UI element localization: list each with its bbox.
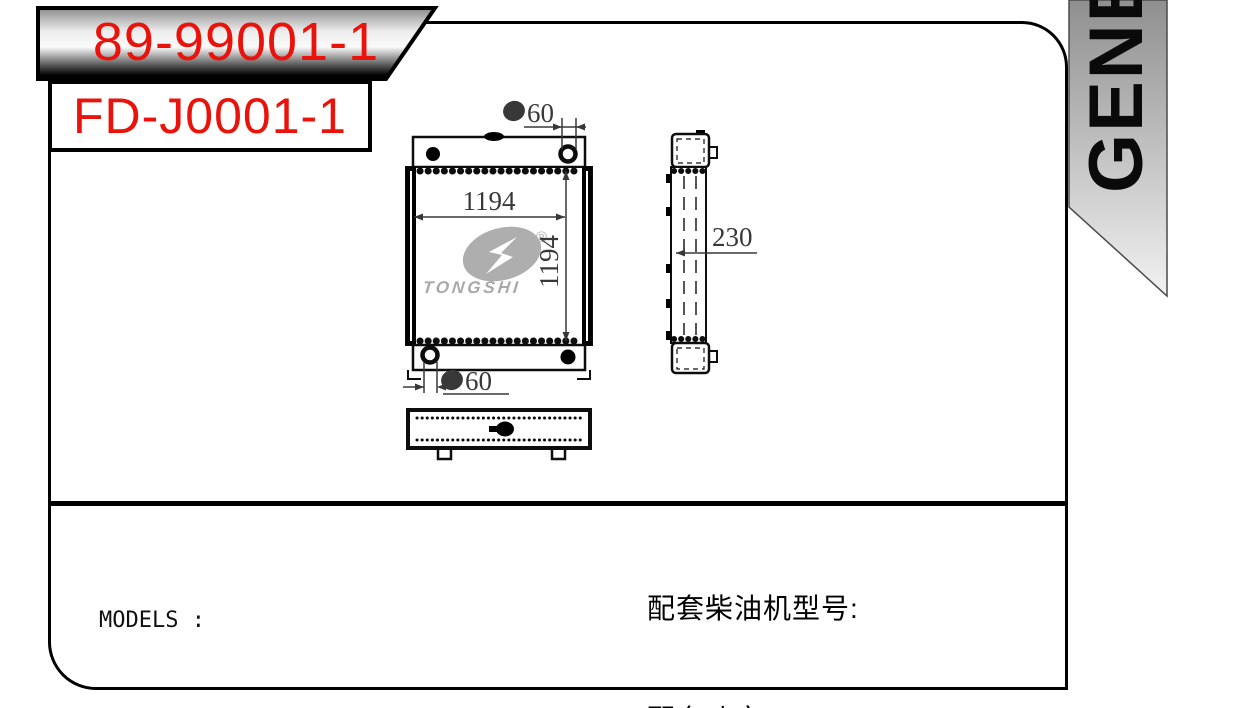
dim-label: 1194 <box>463 186 516 216</box>
outlet-pipe-icon <box>423 348 438 363</box>
dim-label: 60 <box>465 366 492 396</box>
part-number-banner-secondary: FD-J0001-1 <box>48 80 372 152</box>
filler-cap-icon <box>496 422 514 437</box>
phi-symbol-icon <box>500 98 527 124</box>
dim-label: 60 <box>527 98 554 128</box>
spec-line-models: MODELS : <box>99 603 430 639</box>
part-number-primary: 89-99001-1 <box>66 10 406 74</box>
mount-hole-icon <box>426 147 440 161</box>
corner-ribbon-text: GENE <box>1074 0 1159 193</box>
side-view <box>666 130 717 373</box>
datasheet-page: ® TONGSHI 60 1194 1194 <box>0 0 1240 708</box>
specs-chinese: 配套柴油机型号: 配套功率(KW) : 直径*中心高 : 安装尺寸：1218*1… <box>647 516 920 708</box>
watermark-brand: TONGSHI <box>422 278 522 297</box>
spec-line-engine-model: 配套柴油机型号: <box>647 590 920 627</box>
spec-line-power: 配套功率(KW) : <box>647 701 920 708</box>
mount-hole-icon <box>561 350 576 365</box>
dim-label: 230 <box>712 222 753 252</box>
corner-ribbon: GENE <box>1066 0 1172 300</box>
specs-english: MODELS : CORE SIZE : 1194×1194 FULL SIZE… <box>99 531 430 708</box>
filler-cap-icon <box>484 132 504 141</box>
dim-label: 1194 <box>534 235 564 288</box>
part-number-secondary: FD-J0001-1 <box>73 87 347 145</box>
top-view <box>408 410 590 459</box>
part-number-banner-primary: 89-99001-1 <box>36 5 442 83</box>
